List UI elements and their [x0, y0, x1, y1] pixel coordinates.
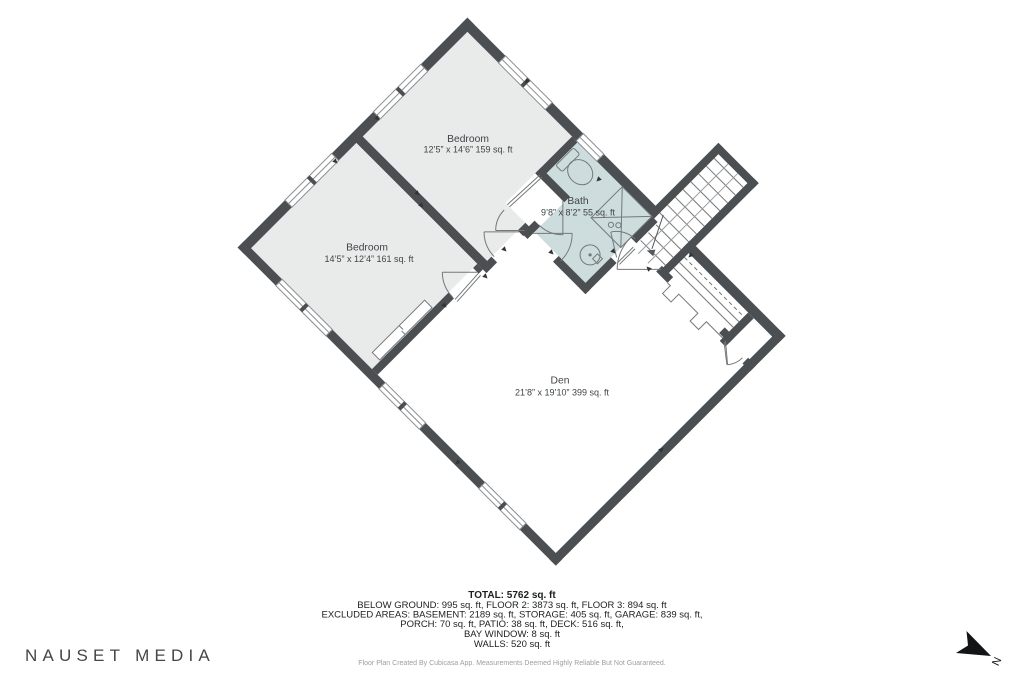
svg-text:NAUSET MEDIA: NAUSET MEDIA [25, 646, 215, 665]
svg-text:Bedroom: Bedroom [346, 243, 388, 254]
svg-text:14’5” x 12’4” 161 sq. ft: 14’5” x 12’4” 161 sq. ft [324, 254, 414, 264]
svg-text:12’5” x 14’6” 159 sq. ft: 12’5” x 14’6” 159 sq. ft [423, 145, 513, 155]
svg-text:9’8” x 8’2” 55 sq. ft: 9’8” x 8’2” 55 sq. ft [541, 208, 616, 218]
svg-text:Floor Plan Created By Cubicasa: Floor Plan Created By Cubicasa App. Meas… [358, 660, 665, 667]
svg-text:Den: Den [551, 376, 570, 387]
svg-text:21’8” x 19’10” 399 sq. ft: 21’8” x 19’10” 399 sq. ft [515, 388, 610, 398]
svg-text:WALLS: 520 sq. ft: WALLS: 520 sq. ft [474, 639, 551, 650]
svg-text:Bedroom: Bedroom [447, 134, 489, 145]
svg-text:Bath: Bath [567, 196, 588, 207]
